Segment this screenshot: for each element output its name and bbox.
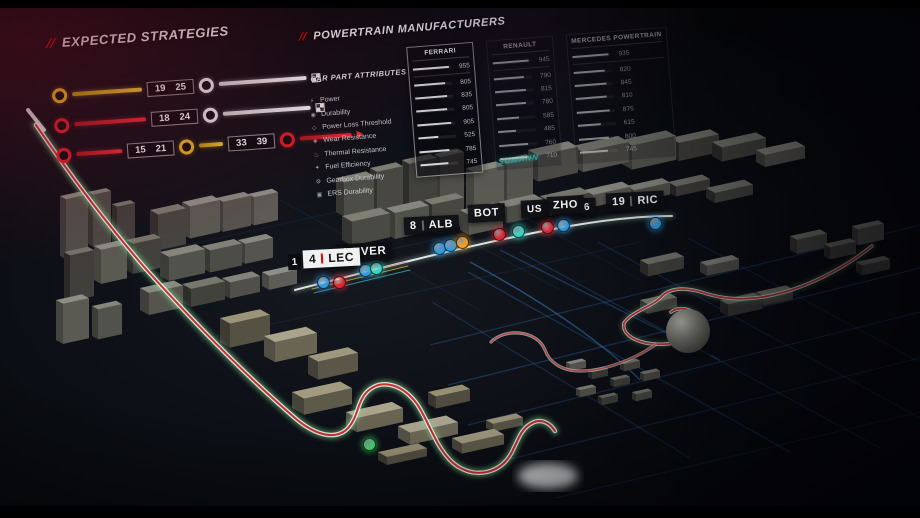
stat-value: 875	[618, 105, 634, 113]
stat-bar	[414, 81, 452, 87]
building	[223, 196, 251, 232]
stat-bar	[497, 115, 535, 121]
manufacturer-column-mercedes-powertrain: MERCEDES POWERTRAIN935820845810875615800…	[566, 27, 677, 166]
stat-value: 760	[541, 138, 557, 146]
stat-bar	[578, 122, 616, 128]
hard-tire-icon	[198, 77, 214, 93]
lap-min: 19	[155, 82, 166, 94]
car-part-attributes-header: CAR PART ATTRIBUTES	[310, 67, 407, 84]
street-line	[498, 358, 920, 462]
lap-max: 24	[179, 111, 190, 123]
attribute-label: Gearbox Durability	[326, 173, 384, 185]
stat-bar	[496, 102, 534, 108]
driver-gem-red	[333, 276, 346, 289]
driver-gem-teal	[512, 225, 525, 238]
medium-tire-icon	[179, 138, 195, 154]
stint-bar-medium	[199, 142, 223, 148]
driver-gem-red	[493, 228, 506, 241]
letterbox-bottom	[0, 506, 920, 518]
driver-tag-lec: 4LEC	[303, 248, 361, 269]
driver-gem-blue	[317, 276, 330, 289]
stat-bar	[575, 82, 613, 88]
attribute-label: Durability	[321, 108, 351, 117]
hard-tire-icon	[203, 107, 219, 123]
building	[98, 304, 122, 339]
driver-tla: VER	[361, 245, 387, 258]
powertrain-manufacturers-panel: // POWERTRAIN MANUFACTURERS CAR PART ATT…	[292, 0, 698, 238]
lap-max: 25	[175, 81, 186, 93]
attribute-label: Power	[320, 96, 340, 105]
building	[160, 252, 169, 281]
stat-value: 485	[540, 125, 556, 133]
driver-gem-orange	[456, 236, 469, 249]
stat-value: 955	[455, 62, 471, 70]
stat-bar	[494, 75, 532, 81]
stat-value: 785	[461, 144, 477, 152]
driver-number: 4	[309, 252, 317, 266]
strategy-row-2: 18 24	[54, 99, 326, 134]
manufacturer-column-ferrari: FERRARI955805835805905525785745	[406, 42, 483, 178]
attribute-label: Fuel Efficiency	[325, 160, 371, 171]
stat-bar	[498, 128, 536, 134]
stat-value: 820	[615, 65, 631, 73]
stat-value: 805	[456, 78, 472, 86]
stat-bar	[417, 121, 455, 127]
stat-value: 810	[617, 92, 633, 100]
stat-bar	[420, 161, 458, 167]
medium-tire-icon	[52, 87, 68, 103]
wear-resistance-icon: ◈	[311, 138, 320, 146]
pit-window-box: 33 39	[228, 133, 276, 151]
manufacturer-column-renault: RENAULT945790815780585485760710	[486, 36, 563, 172]
strategy-row-1: 19 25	[52, 69, 322, 104]
powertrain-title: POWERTRAIN MANUFACTURERS	[313, 15, 506, 42]
stint-bar-medium	[72, 87, 142, 96]
pit-window-box: 18 24	[151, 108, 199, 126]
driver-gem-green	[363, 438, 376, 451]
red-slashes-icon: //	[45, 35, 56, 51]
lap-min: 18	[159, 112, 170, 124]
soft-tire-icon	[280, 131, 296, 147]
stat-value: 780	[538, 98, 554, 106]
stat-value: 615	[620, 119, 636, 127]
thermal-resistance-icon: ♨	[312, 151, 321, 159]
fuel-efficiency-icon: ✦	[313, 164, 322, 172]
stat-bar	[415, 95, 453, 101]
letterbox-top	[0, 0, 920, 8]
stat-bar	[576, 95, 614, 101]
stat-bar	[495, 88, 533, 94]
stat-bar	[579, 135, 617, 141]
start-finish-glow	[518, 463, 578, 489]
attribute-label: Wear Resistance	[323, 133, 377, 144]
stat-bar	[580, 149, 618, 155]
pit-window-box: 19 25	[146, 78, 194, 96]
tag-divider	[321, 253, 324, 263]
stat-bar	[499, 142, 537, 148]
broadcast-scene: SUMANN 1VER14LEC8ALBBOTUSZHO619RIC // EX…	[0, 0, 920, 518]
stat-bar	[493, 60, 531, 66]
stat-value: 525	[460, 131, 476, 139]
power-loss-threshold-icon: ◇	[310, 124, 319, 132]
building	[92, 306, 98, 339]
manufacturer-columns: FERRARI955805835805905525785745RENAULT94…	[406, 27, 676, 178]
ers-durability-icon: ▣	[315, 191, 324, 199]
lap-min: 33	[236, 137, 247, 149]
attributes-list: ⚡Power◉Durability◇Power Loss Threshold◈W…	[308, 87, 420, 202]
soft-tire-icon	[54, 117, 70, 133]
driver-gem-red	[541, 221, 554, 234]
stat-bar	[413, 66, 451, 72]
stat-value: 845	[616, 79, 632, 87]
power-icon: ⚡	[308, 98, 317, 106]
building	[254, 192, 278, 225]
stat-value: 805	[458, 104, 474, 112]
stat-bar	[416, 108, 454, 114]
attribute-label: ERS Durability	[327, 187, 373, 198]
stat-bar	[500, 155, 538, 161]
building	[70, 250, 94, 301]
stat-value: 790	[536, 71, 552, 79]
building	[158, 208, 186, 250]
building	[63, 298, 89, 344]
building	[56, 300, 63, 344]
driver-gem-teal	[370, 262, 383, 275]
building	[60, 196, 66, 259]
stint-bar-soft	[76, 149, 122, 156]
stint-bar-hard	[219, 76, 307, 86]
lap-max: 21	[155, 142, 166, 154]
stat-value: 585	[539, 111, 555, 119]
lap-min: 15	[135, 144, 146, 156]
stat-value: 745	[622, 145, 638, 153]
soft-tire-icon	[56, 147, 72, 163]
dome-building	[666, 309, 710, 353]
driver-tla: LEC	[328, 250, 355, 265]
stat-value: 815	[537, 85, 553, 93]
gearbox-durability-icon: ⚙	[314, 178, 323, 186]
stat-bar	[577, 109, 615, 115]
building	[101, 244, 127, 284]
red-slashes-icon: //	[298, 31, 307, 44]
stint-bar-soft	[74, 117, 146, 126]
stat-bar	[418, 135, 456, 141]
building	[190, 200, 220, 239]
durability-icon: ◉	[309, 111, 318, 119]
street-line	[556, 412, 920, 498]
driver-gem-blue	[557, 219, 570, 232]
stat-value: 905	[459, 118, 475, 126]
stat-bar	[574, 69, 612, 75]
stat-value: 835	[457, 91, 473, 99]
stat-value: 935	[614, 50, 630, 58]
stat-value: 745	[462, 158, 478, 166]
stat-value: 800	[621, 132, 637, 140]
position-box: 1	[288, 254, 302, 271]
building	[94, 246, 101, 284]
stat-bar	[572, 53, 610, 59]
stat-value: 945	[534, 56, 550, 64]
building	[64, 252, 70, 301]
stat-bar	[419, 148, 457, 154]
pit-window-box: 15 21	[127, 140, 175, 158]
stat-value: 710	[542, 152, 558, 160]
driver-gem-blue	[649, 217, 662, 230]
lap-max: 39	[256, 135, 267, 147]
